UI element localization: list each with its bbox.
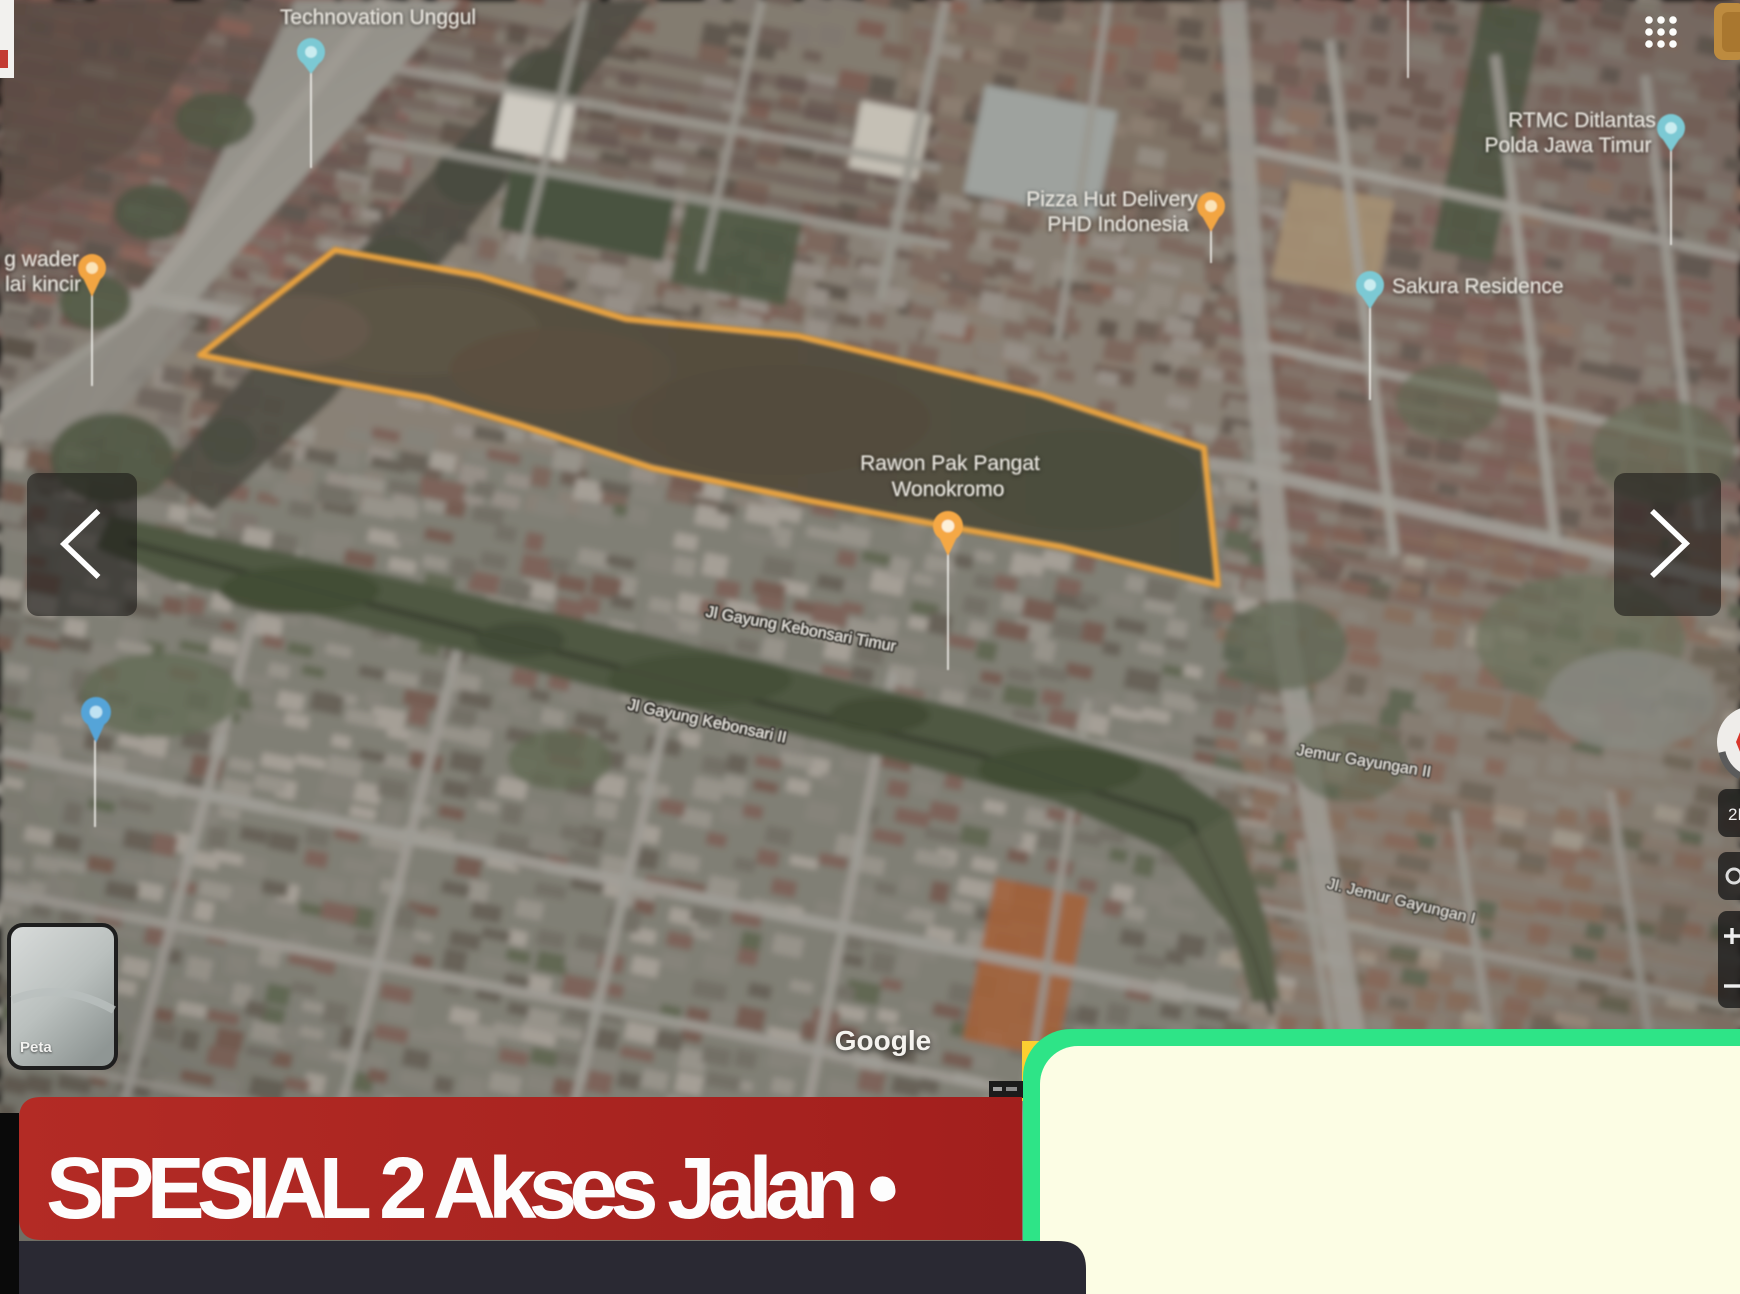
svg-text:Pizza Hut Delivery: Pizza Hut Delivery [1026,188,1198,211]
svg-text:g wader: g wader [4,248,79,271]
svg-text:Peta: Peta [20,1039,52,1056]
svg-text:lai kincir: lai kincir [5,273,81,296]
svg-text:SPESIAL 2 Akses Jalan •: SPESIAL 2 Akses Jalan • [46,1140,898,1237]
svg-text:2D: 2D [1728,805,1740,824]
svg-text:Polda Jawa Timur: Polda Jawa Timur [1485,134,1652,157]
svg-text:Sakura Residence: Sakura Residence [1392,275,1564,298]
svg-text:PHD Indonesia: PHD Indonesia [1047,213,1189,236]
svg-text:Rawon Pak Pangat: Rawon Pak Pangat [860,452,1040,475]
svg-text:RTMC Ditlantas: RTMC Ditlantas [1508,109,1656,132]
svg-text:Google: Google [835,1025,931,1056]
svg-text:Wonokromo: Wonokromo [892,478,1005,501]
svg-text:Technovation Unggul: Technovation Unggul [280,6,476,29]
